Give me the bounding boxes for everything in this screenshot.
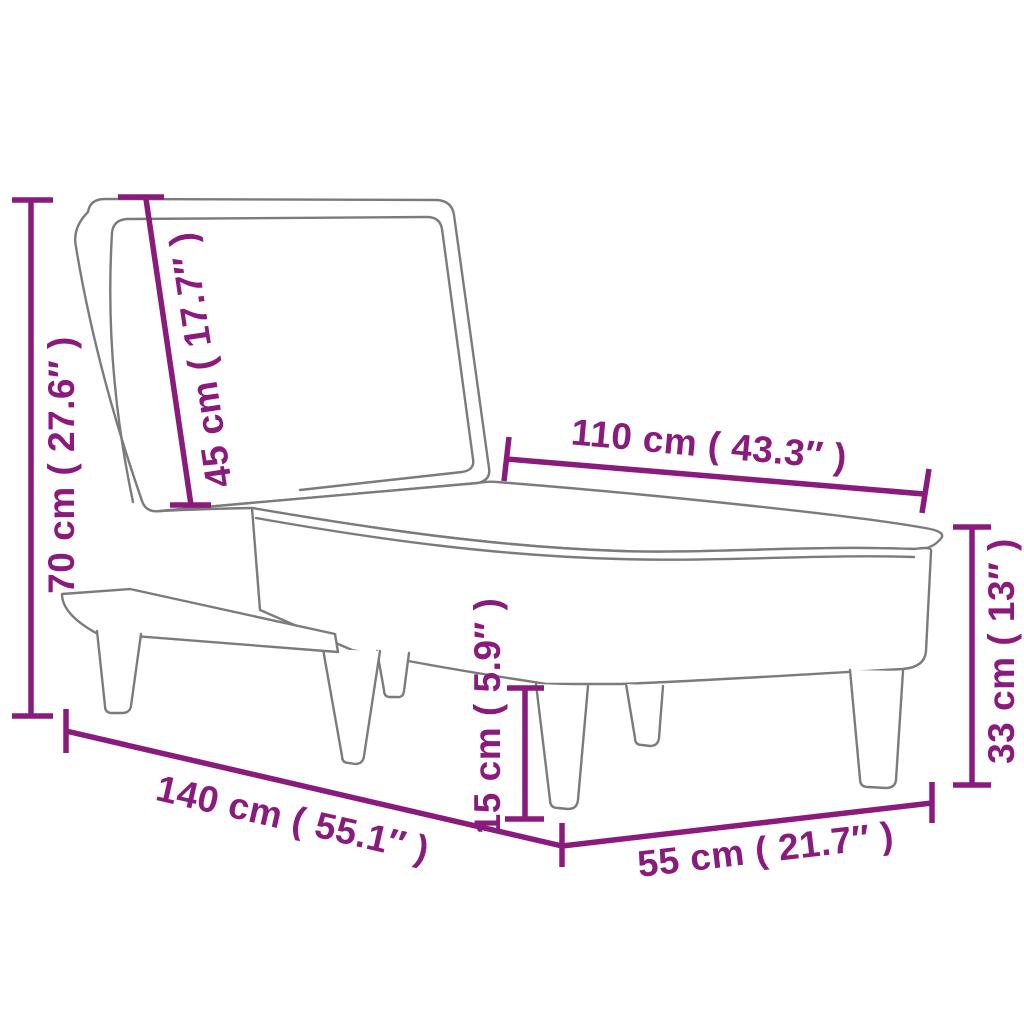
product-dimension-diagram: 70 cm ( 27.6″ ) 45 cm ( 17.7″ ) 110 cm (… bbox=[0, 0, 1024, 1024]
dimension-total-width: 55 cm ( 21.7″ ) bbox=[562, 782, 932, 885]
leg-back-middle bbox=[377, 651, 409, 697]
leg-center-back bbox=[626, 684, 663, 746]
leg-platform bbox=[97, 631, 141, 713]
dimension-seat-height: 33 cm ( 13″ ) bbox=[953, 527, 1022, 785]
dimension-label-leg-height: 15 cm ( 5.9″ ) bbox=[467, 598, 508, 835]
dimension-total-height: 70 cm ( 27.6″ ) bbox=[12, 200, 82, 716]
leg-front-middle bbox=[323, 649, 380, 764]
dimension-label-seat-height: 33 cm ( 13″ ) bbox=[981, 538, 1022, 764]
leg-center-front bbox=[536, 684, 588, 809]
chaise-longue-diagram-canvas: 70 cm ( 27.6″ ) 45 cm ( 17.7″ ) 110 cm (… bbox=[0, 0, 1024, 1024]
dimension-label-total-height: 70 cm ( 27.6″ ) bbox=[41, 336, 82, 594]
backrest-outline bbox=[75, 199, 489, 511]
leg-right bbox=[850, 670, 903, 788]
